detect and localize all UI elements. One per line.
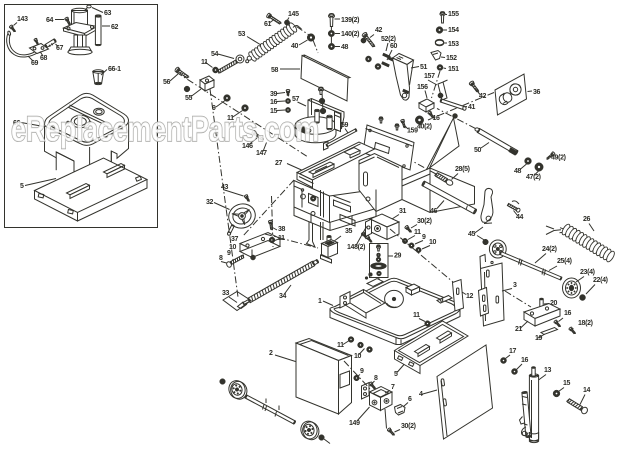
svg-text:12: 12 bbox=[466, 293, 474, 300]
svg-text:2: 2 bbox=[269, 350, 273, 357]
svg-text:16: 16 bbox=[521, 357, 529, 364]
svg-text:15: 15 bbox=[563, 380, 571, 387]
svg-text:40(2): 40(2) bbox=[417, 124, 432, 131]
svg-text:24(2): 24(2) bbox=[542, 246, 557, 253]
svg-text:eReplacementParts.com: eReplacementParts.com bbox=[11, 110, 319, 149]
svg-text:22(4): 22(4) bbox=[593, 277, 608, 284]
svg-text:139(2): 139(2) bbox=[341, 17, 359, 24]
svg-text:13: 13 bbox=[544, 367, 552, 374]
svg-text:29: 29 bbox=[394, 253, 402, 260]
svg-text:16: 16 bbox=[564, 310, 572, 317]
svg-text:69: 69 bbox=[31, 60, 39, 67]
svg-text:11: 11 bbox=[414, 229, 421, 236]
svg-text:17: 17 bbox=[509, 348, 517, 355]
svg-text:149: 149 bbox=[349, 420, 360, 427]
svg-text:66-1: 66-1 bbox=[108, 66, 121, 73]
svg-text:152: 152 bbox=[446, 55, 457, 62]
svg-text:30(2): 30(2) bbox=[417, 218, 432, 225]
svg-text:33: 33 bbox=[222, 290, 230, 297]
svg-text:32: 32 bbox=[206, 199, 214, 206]
svg-text:18(2): 18(2) bbox=[578, 320, 593, 327]
svg-text:68: 68 bbox=[40, 55, 48, 62]
svg-text:140(2): 140(2) bbox=[341, 31, 359, 38]
svg-text:9: 9 bbox=[360, 368, 364, 375]
svg-text:40: 40 bbox=[291, 43, 299, 50]
svg-text:54: 54 bbox=[211, 51, 219, 58]
svg-text:14: 14 bbox=[583, 387, 591, 394]
svg-text:34: 34 bbox=[279, 293, 287, 300]
svg-text:26: 26 bbox=[583, 216, 591, 223]
svg-text:9: 9 bbox=[227, 250, 231, 257]
svg-text:60: 60 bbox=[390, 43, 398, 50]
svg-text:48: 48 bbox=[341, 44, 349, 51]
svg-text:27: 27 bbox=[275, 160, 283, 167]
svg-text:8: 8 bbox=[374, 375, 378, 382]
svg-text:63: 63 bbox=[104, 10, 112, 17]
svg-text:155: 155 bbox=[448, 11, 459, 18]
svg-text:8: 8 bbox=[219, 255, 223, 262]
svg-text:23(4): 23(4) bbox=[580, 269, 595, 276]
svg-text:46: 46 bbox=[430, 208, 438, 215]
svg-text:3: 3 bbox=[513, 282, 517, 289]
svg-text:62: 62 bbox=[111, 24, 119, 31]
svg-text:11: 11 bbox=[201, 59, 208, 66]
svg-text:41: 41 bbox=[468, 104, 476, 111]
svg-text:42: 42 bbox=[375, 27, 383, 34]
svg-text:10: 10 bbox=[354, 353, 362, 360]
svg-text:154: 154 bbox=[448, 27, 459, 34]
svg-text:64: 64 bbox=[46, 17, 54, 24]
svg-text:49(2): 49(2) bbox=[551, 155, 566, 162]
svg-text:5: 5 bbox=[20, 183, 24, 190]
svg-text:38: 38 bbox=[278, 226, 286, 233]
svg-text:157: 157 bbox=[424, 73, 435, 80]
svg-text:6: 6 bbox=[408, 396, 412, 403]
svg-text:30(2): 30(2) bbox=[401, 423, 416, 430]
svg-text:37: 37 bbox=[231, 236, 239, 243]
svg-text:28(5): 28(5) bbox=[455, 166, 470, 173]
svg-text:59: 59 bbox=[341, 122, 349, 129]
svg-text:56: 56 bbox=[163, 79, 171, 86]
svg-text:153: 153 bbox=[448, 41, 459, 48]
svg-text:16: 16 bbox=[270, 99, 278, 106]
svg-text:45: 45 bbox=[468, 231, 476, 238]
svg-text:58: 58 bbox=[271, 67, 279, 74]
svg-text:143: 143 bbox=[17, 16, 28, 23]
svg-text:11: 11 bbox=[337, 342, 344, 349]
svg-text:52(2): 52(2) bbox=[381, 36, 396, 43]
svg-text:50: 50 bbox=[474, 147, 482, 154]
svg-text:31: 31 bbox=[399, 208, 407, 215]
svg-text:39: 39 bbox=[270, 91, 278, 98]
svg-text:10: 10 bbox=[429, 239, 437, 246]
svg-text:25(4): 25(4) bbox=[557, 258, 572, 265]
svg-text:53: 53 bbox=[238, 31, 246, 38]
svg-text:11: 11 bbox=[413, 312, 420, 319]
svg-text:35: 35 bbox=[345, 228, 353, 235]
svg-text:7: 7 bbox=[391, 384, 395, 391]
svg-text:36: 36 bbox=[533, 89, 541, 96]
svg-text:151: 151 bbox=[448, 66, 459, 73]
svg-text:147: 147 bbox=[256, 150, 267, 157]
svg-text:51: 51 bbox=[420, 64, 428, 71]
svg-text:9: 9 bbox=[422, 234, 426, 241]
svg-text:145: 145 bbox=[288, 11, 299, 18]
svg-text:47(2): 47(2) bbox=[526, 174, 541, 181]
svg-text:1: 1 bbox=[318, 298, 322, 305]
svg-text:156: 156 bbox=[417, 84, 428, 91]
